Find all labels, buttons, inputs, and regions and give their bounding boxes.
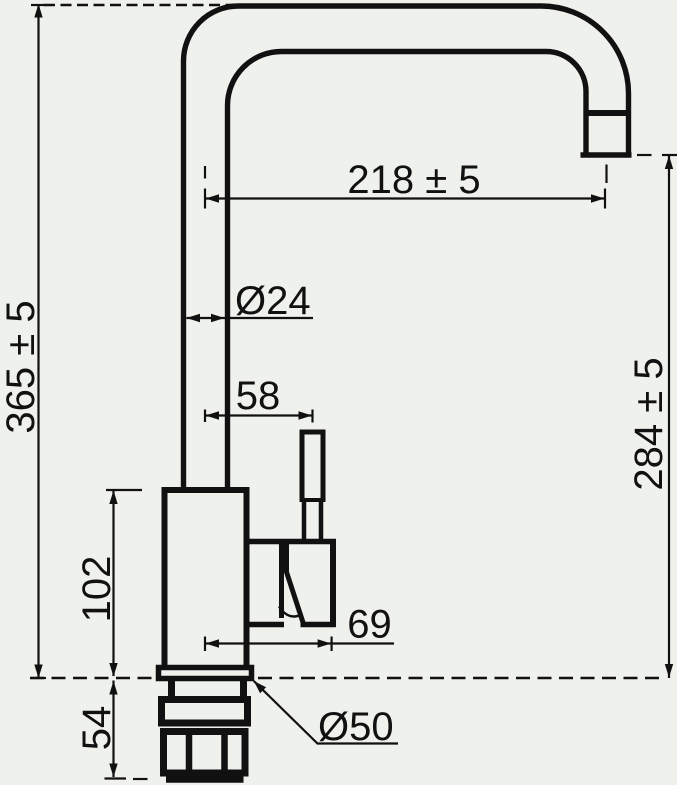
svg-text:54: 54 xyxy=(75,706,119,751)
svg-text:Ø50: Ø50 xyxy=(318,705,394,749)
svg-text:218 ± 5: 218 ± 5 xyxy=(347,158,480,202)
svg-text:Ø24: Ø24 xyxy=(235,279,311,323)
svg-text:69: 69 xyxy=(347,603,392,647)
svg-text:58: 58 xyxy=(236,374,281,418)
svg-text:365 ± 5: 365 ± 5 xyxy=(0,300,43,433)
svg-text:284 ± 5: 284 ± 5 xyxy=(627,357,671,490)
svg-text:102: 102 xyxy=(75,556,119,623)
